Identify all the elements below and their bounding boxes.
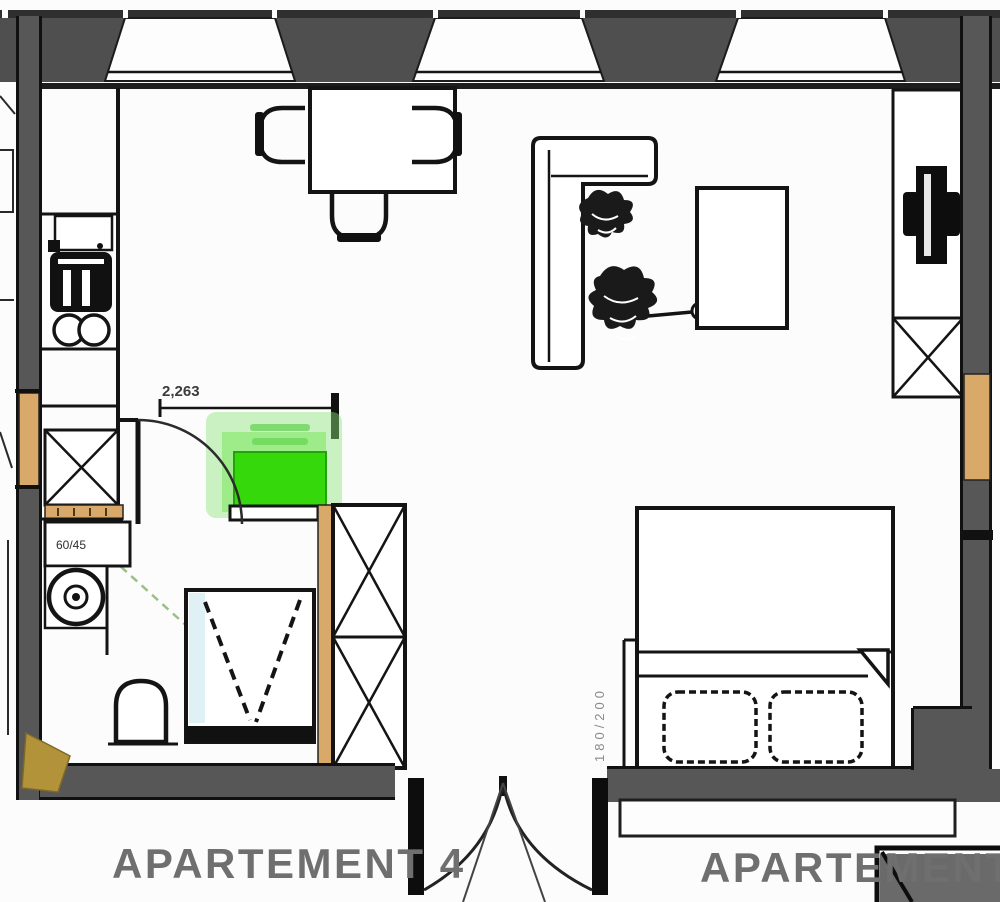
corridor-niche bbox=[620, 800, 955, 836]
apartment-label-left: APARTEMENT 4 bbox=[112, 840, 466, 887]
floor-plan-page: 2,263 60/45 bbox=[0, 0, 1000, 902]
coffee-table bbox=[697, 188, 787, 328]
bed-size-label: 180/200 bbox=[592, 687, 607, 762]
floor-plan: 2,263 60/45 bbox=[0, 0, 1000, 902]
plant-icon bbox=[579, 190, 633, 238]
plant-icon bbox=[588, 266, 708, 339]
kitchen-cabinet bbox=[55, 216, 112, 250]
pillow bbox=[664, 692, 756, 762]
washing-machine-icon bbox=[45, 566, 107, 655]
left-wall bbox=[15, 16, 42, 800]
shower bbox=[186, 590, 314, 742]
neighbor-fragments bbox=[0, 96, 15, 735]
chair bbox=[332, 194, 386, 242]
wall-door-wood bbox=[19, 393, 39, 487]
door-post bbox=[592, 778, 608, 895]
vanity-top bbox=[45, 505, 123, 519]
wall-door-wood bbox=[964, 374, 990, 480]
chair bbox=[255, 108, 305, 162]
dining-table bbox=[310, 88, 455, 192]
inner-wall-line bbox=[18, 83, 1000, 89]
washbasin-label: 60/45 bbox=[56, 538, 86, 552]
hob-rings-icon bbox=[54, 315, 109, 345]
lowboard-cabinet-icon bbox=[893, 318, 963, 397]
tall-cabinet-icon bbox=[45, 430, 118, 505]
apartment-label-right: APARTEMENT bbox=[700, 844, 1000, 891]
toilet-icon bbox=[108, 681, 178, 744]
pillow bbox=[770, 692, 862, 762]
right-wall bbox=[960, 16, 993, 802]
bench-under-highlight bbox=[230, 506, 318, 520]
double-bed: 180/200 bbox=[592, 508, 893, 770]
highlighted-unit[interactable] bbox=[234, 452, 326, 506]
bathroom: 60/45 bbox=[40, 505, 314, 744]
top-exterior-wall bbox=[0, 10, 1000, 89]
dimension-label: 2,263 bbox=[162, 383, 200, 400]
sofa bbox=[533, 138, 656, 368]
green-highlight[interactable] bbox=[206, 412, 342, 518]
wardrobe bbox=[318, 505, 405, 768]
washbasin: 60/45 bbox=[45, 522, 130, 566]
